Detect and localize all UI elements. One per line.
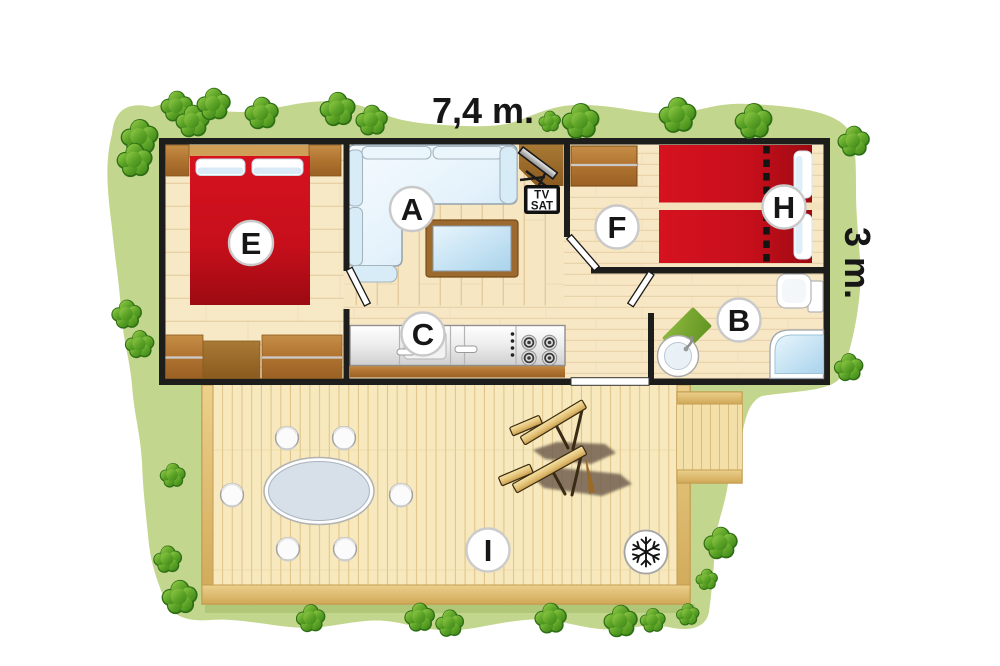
svg-text:F: F: [608, 210, 627, 245]
svg-text:7,4 m.: 7,4 m.: [432, 90, 534, 131]
svg-text:SAT: SAT: [531, 201, 553, 213]
svg-text:H: H: [773, 190, 795, 225]
svg-text:I: I: [484, 533, 493, 568]
svg-text:A: A: [401, 192, 423, 227]
svg-text:E: E: [241, 226, 262, 261]
svg-text:3 m.: 3 m.: [837, 227, 878, 299]
svg-text:B: B: [728, 303, 750, 338]
svg-text:C: C: [412, 317, 434, 352]
